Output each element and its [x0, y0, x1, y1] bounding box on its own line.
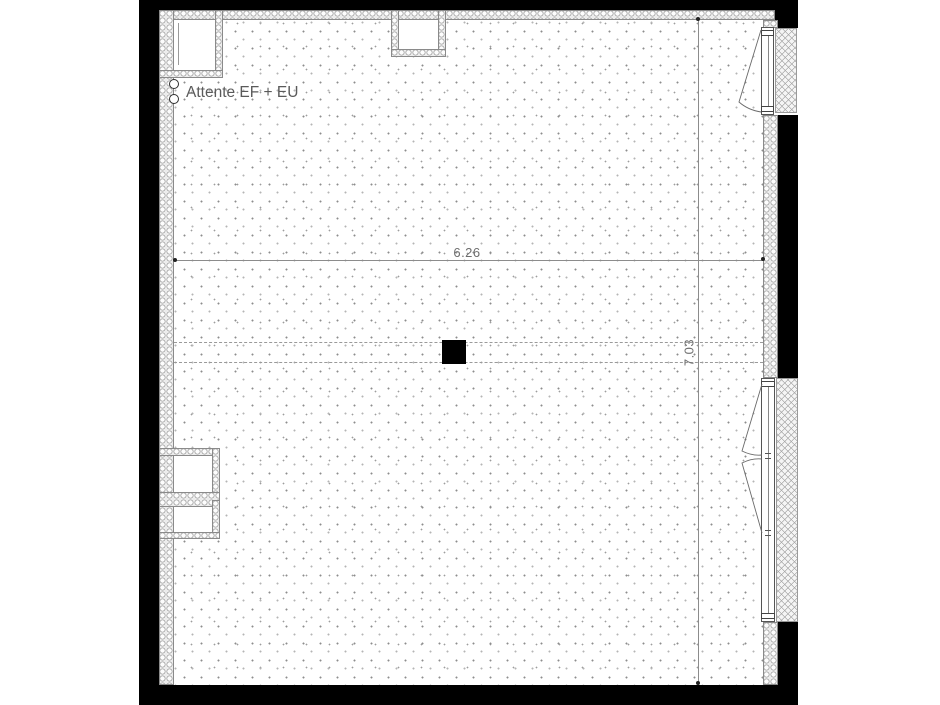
window-casement-swing-lower [742, 459, 762, 533]
dimension-label-height: 7.03 [682, 331, 697, 375]
dimension-tick-top [696, 17, 700, 21]
hidden-edge-line-upper [174, 342, 763, 343]
riser-circle-1 [169, 79, 179, 89]
dimension-tick-right [761, 257, 765, 261]
window-casement-swing-upper [742, 384, 762, 455]
attente-label: Attente EF + EU [186, 84, 298, 102]
floor-plan-canvas: 6.26 7.03 Attente EF + EU [0, 0, 940, 705]
dimension-tick-bottom [696, 681, 700, 685]
center-post [442, 340, 466, 364]
hidden-edge-line-lower [174, 362, 763, 363]
door-swing-arc [739, 30, 761, 112]
dimension-label-width: 6.26 [427, 245, 507, 260]
riser-circle-2 [169, 94, 179, 104]
dimension-line-vertical [698, 19, 699, 685]
swing-lines-layer [0, 0, 940, 705]
dimension-tick-left [173, 258, 177, 262]
dimension-line-horizontal [174, 260, 763, 261]
